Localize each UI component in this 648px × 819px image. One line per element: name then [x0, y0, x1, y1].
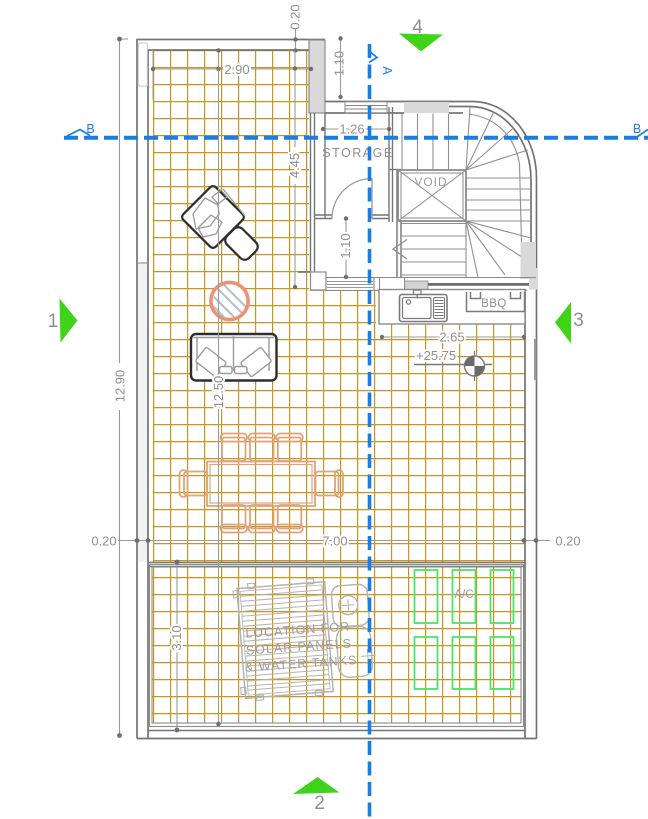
svg-text:12.50: 12.50 [211, 376, 226, 409]
svg-text:B: B [86, 122, 94, 136]
svg-text:1.10: 1.10 [332, 51, 347, 76]
svg-text:12.90: 12.90 [113, 370, 128, 403]
svg-text:VOID: VOID [414, 175, 447, 189]
svg-text:+25.75: +25.75 [416, 348, 456, 363]
svg-text:STORAGE: STORAGE [322, 146, 393, 160]
svg-text:3: 3 [573, 310, 584, 331]
svg-text:2: 2 [314, 793, 325, 814]
svg-text:1: 1 [48, 311, 59, 332]
svg-text:4: 4 [412, 17, 423, 38]
svg-text:1.10: 1.10 [338, 233, 353, 258]
svg-text:2.65: 2.65 [439, 330, 464, 345]
svg-text:B: B [633, 122, 641, 136]
svg-text:A: A [380, 66, 394, 75]
svg-text:2.90: 2.90 [224, 62, 249, 77]
svg-text:A/C: A/C [454, 589, 473, 601]
svg-text:1.26: 1.26 [339, 122, 364, 137]
svg-text:4.45: 4.45 [287, 153, 302, 178]
svg-text:0.20: 0.20 [555, 534, 580, 549]
svg-text:7.00: 7.00 [322, 534, 347, 549]
svg-text:3.10: 3.10 [169, 625, 184, 650]
svg-text:0.20: 0.20 [288, 4, 303, 29]
svg-text:BBQ: BBQ [481, 298, 507, 310]
svg-text:0.20: 0.20 [91, 534, 116, 549]
